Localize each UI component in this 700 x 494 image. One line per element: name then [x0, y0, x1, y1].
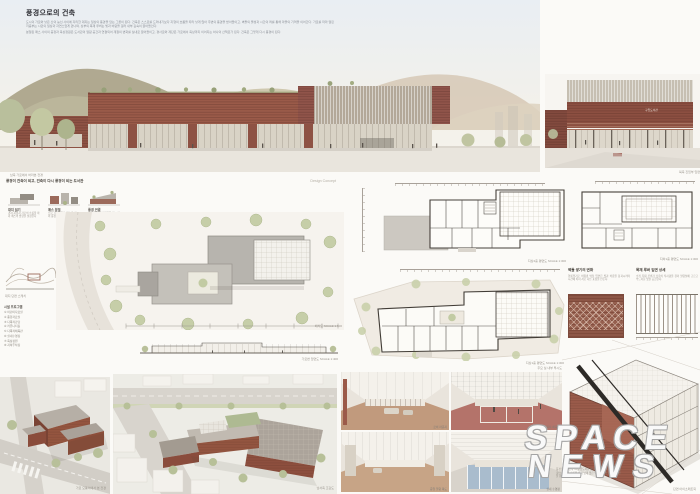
detail-louver-title: 목재 루버 입면 상세 — [636, 268, 698, 273]
lounge-sofa — [403, 410, 414, 415]
street-section-caption: 가로변 입면도 SCALE 1:400 — [250, 357, 338, 361]
program-list: 시설 프로그램 ① 어린이자료실 ② 종합자료실 ③ 다목적강당 ④ 커뮤니티홀… — [4, 304, 60, 348]
concept-header-sub: Design Concept — [310, 179, 336, 184]
interior-lounge: 로비 라운지 — [341, 372, 449, 430]
louver-section-drawing — [636, 294, 698, 334]
plan1f-dim-ticks — [400, 269, 560, 272]
interior-caption: 중앙 열람 복도 — [430, 487, 447, 491]
presentation-board: 남측 가로에서 바라본 전경 풍경으로의 건축 도시의 가로와 낮은 산의 능선… — [0, 0, 700, 494]
detail-brick-title: 벽돌 쌓기의 변화 — [568, 268, 630, 273]
concept-diagram-2-thumb — [48, 190, 80, 206]
corridor-opening — [345, 445, 356, 476]
plan-1f — [346, 273, 568, 361]
concept-header: 풍경이 건축이 되고, 건축이 다시 풍경이 되는 도서관 Design Con… — [6, 179, 336, 184]
gym-player — [540, 404, 541, 409]
planb1-dim-ticks — [595, 181, 695, 184]
aerial-render-birdseye — [113, 374, 337, 494]
program-list-title: 시설 프로그램 — [4, 304, 60, 309]
concept-diagram-1: 대지 읽기 경사 지형과 가로의 흐름을 따라 매스의 방향을 설정한다 — [8, 190, 40, 219]
plan-b1-caption: 지하1층 평면도 SCALE 1:300 — [608, 257, 698, 261]
interior-caption: 로비 라운지 — [433, 425, 447, 429]
gym-court-centerline — [506, 406, 507, 423]
board-title: 풍경으로의 건축 — [26, 8, 334, 18]
plan-2f — [368, 186, 568, 258]
gym-player — [493, 407, 494, 412]
detail-louver-desc: 수직 목재 루버가 남측의 직사광을 걸러 열람실에 고르고 부드러운 빛을 공… — [636, 275, 698, 282]
aerial-render-corner — [0, 377, 110, 494]
interior-caption: 실내 수영장 — [546, 487, 560, 491]
concept-diagram-1-desc: 경사 지형과 가로의 흐름을 따라 매스의 방향을 설정한다 — [8, 212, 40, 219]
gym-ceiling — [451, 372, 562, 402]
interiors-header: 주요 실 내부 투시도 — [468, 366, 562, 370]
aerial-corner-caption: 가로 모퉁이에서 본 전경 — [30, 486, 106, 490]
street-section — [140, 340, 338, 356]
building-sign: 구립도서관 — [645, 108, 658, 112]
aerial-birdseye-caption: 남서측 조감도 — [258, 486, 334, 490]
elevation-render — [545, 74, 700, 168]
site-plan-caption: 배치도 SCALE 1:500 — [246, 324, 342, 328]
detail-brick-desc: 영롱쌓기로 비워낸 벽돌 입면은 빛과 바람을 통과시키며 시간에 따라 서로 … — [568, 275, 630, 282]
site-plan — [56, 212, 344, 330]
concept-diagram-3-thumb — [88, 190, 120, 206]
plan-b1 — [576, 186, 698, 254]
title-block: 풍경으로의 건축 도시의 가로와 낮은 산의 능선 사이에 자리한 대지는 일상… — [26, 8, 334, 34]
gym-player — [518, 409, 519, 414]
program-item: ⑧ 지하주차장 — [4, 343, 60, 348]
lounge-brick-column — [343, 379, 347, 425]
brick-band — [569, 295, 623, 302]
intro-paragraph-2: 분절된 매스 사이의 중정과 옥상정원은 도서관의 열람 공간과 연결되어 계절… — [26, 31, 334, 35]
hero-caption: 남측 가로에서 바라본 전경 — [10, 173, 140, 177]
corridor-opening — [434, 445, 445, 476]
space-news-watermark: SPACE NEWS — [495, 424, 700, 479]
interior-corridor: 중앙 열람 복도 — [341, 432, 449, 492]
corridor-ceiling — [341, 432, 449, 463]
plan-2f-caption: 지상2층 평면도 SCALE 1:300 — [470, 259, 566, 263]
concept-diagram-1-thumb — [8, 190, 40, 206]
lounge-back-wall — [365, 399, 426, 406]
gym-back-wall — [475, 399, 537, 406]
plan2f-dim-ticks-v — [362, 188, 365, 252]
site-sketch — [4, 252, 56, 292]
axon-caption: 단면 아이소메트릭 — [620, 487, 696, 491]
corridor-back-wall — [365, 460, 426, 467]
lounge-ceiling — [341, 372, 449, 402]
corridor-bench — [373, 468, 382, 473]
concept-header-text: 풍경이 건축이 되고, 건축이 다시 풍경이 되는 도서관 — [6, 179, 83, 184]
lounge-sofa — [384, 408, 399, 414]
intro-paragraph-1: 도시의 가로와 낮은 산의 능선 사이에 자리한 대지는 일상의 풍경을 담는 … — [26, 21, 334, 29]
elevation-caption: 북측 진입부 입면 — [600, 170, 700, 174]
plan-1f-caption: 지상1층 평면도 SCALE 1:300 — [468, 361, 564, 365]
